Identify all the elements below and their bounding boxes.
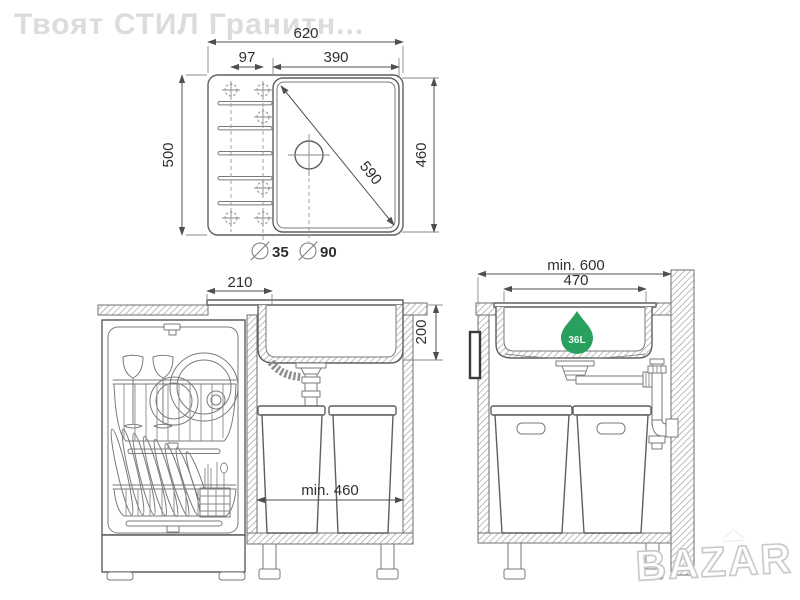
dim-label-210: 210 [227,274,252,291]
diameter-icon [299,242,317,260]
countertop-left [98,305,208,315]
dishwasher-foot [219,572,245,580]
dim-label-390: 390 [323,49,348,66]
capacity-drop-badge: 36L [561,311,593,354]
dim-bowl-width: 390 [273,49,399,76]
installation-drawing-page: Твоят СТИЛ Гранитн... [0,0,800,600]
cabinet-door-handle [470,332,480,378]
water-drop-icon [561,311,593,354]
diameter-icon [251,242,269,260]
horizontal-drain-pipe [576,376,646,384]
countertop-right [400,303,427,315]
dishwasher-base [102,535,245,572]
waste-bin [258,406,325,533]
dishwasher [102,320,245,580]
dim-label-97: 97 [239,49,256,66]
sink-bowl-section [258,305,403,363]
bazar-logo-text: BAZAR [634,534,793,589]
dim-bowl-depth: 460 [402,78,439,232]
side-section-view: 210 200 min. 460 [98,274,443,580]
waste-bin [573,406,651,533]
cabinet-legs [259,544,398,579]
dim-label-min460: min. 460 [301,482,359,499]
dim-label-200: 200 [413,319,430,344]
cabinet-side-panel-left [247,315,257,533]
waste-bin [491,406,572,533]
technical-drawing: 590 620 97 390 [0,0,800,600]
capacity-label: 36L [568,335,585,346]
sink-rim-profile [207,300,403,305]
dim-overall-width: 620 [208,25,403,73]
dim-label-620: 620 [293,25,318,42]
dim-label-90: 90 [320,244,337,261]
bazar-logo: BAZAR [634,534,800,600]
dishwasher-foot [107,572,133,580]
dim-label-460: 460 [413,142,430,167]
dim-overall-depth: 500 [160,75,207,235]
sink-rim-profile [494,303,656,307]
cabinet-side-panel-right [403,315,413,533]
waste-bin [329,406,396,533]
dim-label-470: 470 [563,272,588,289]
sink-top-view: 590 620 97 390 [160,25,439,261]
drain-diameter-callout: 90 [299,242,337,261]
dim-label-35: 35 [272,244,289,261]
front-section-view: 36L [470,257,694,579]
wall-drain-fitting [666,419,678,437]
drain-elbow [652,420,667,436]
tap-hole-diameter-callout: 35 [251,242,289,261]
dim-bowl-width-front: 470 [504,272,646,302]
cabinet-bottom-panel [247,533,413,544]
logo-roof-icon [722,530,744,541]
drain-assembly [271,362,326,406]
dim-tap-hole-spacing: 97 [231,49,263,67]
dim-label-500: 500 [160,142,177,167]
strainer-flange [556,361,594,366]
